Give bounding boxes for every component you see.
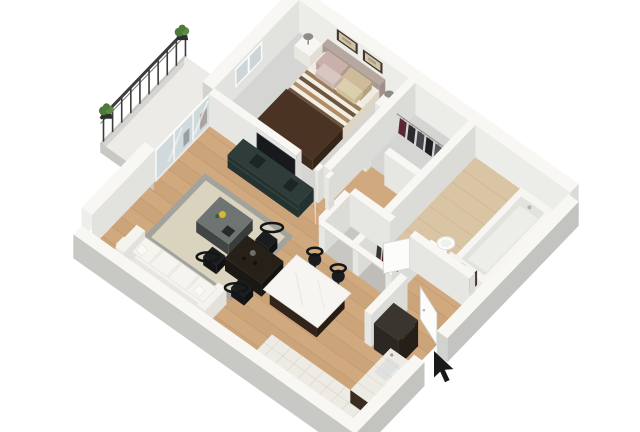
bathroom-door (384, 238, 410, 273)
floor-plan-render (0, 0, 640, 432)
balcony-plant-1 (175, 25, 190, 41)
floor-plan-canvas (0, 0, 640, 432)
